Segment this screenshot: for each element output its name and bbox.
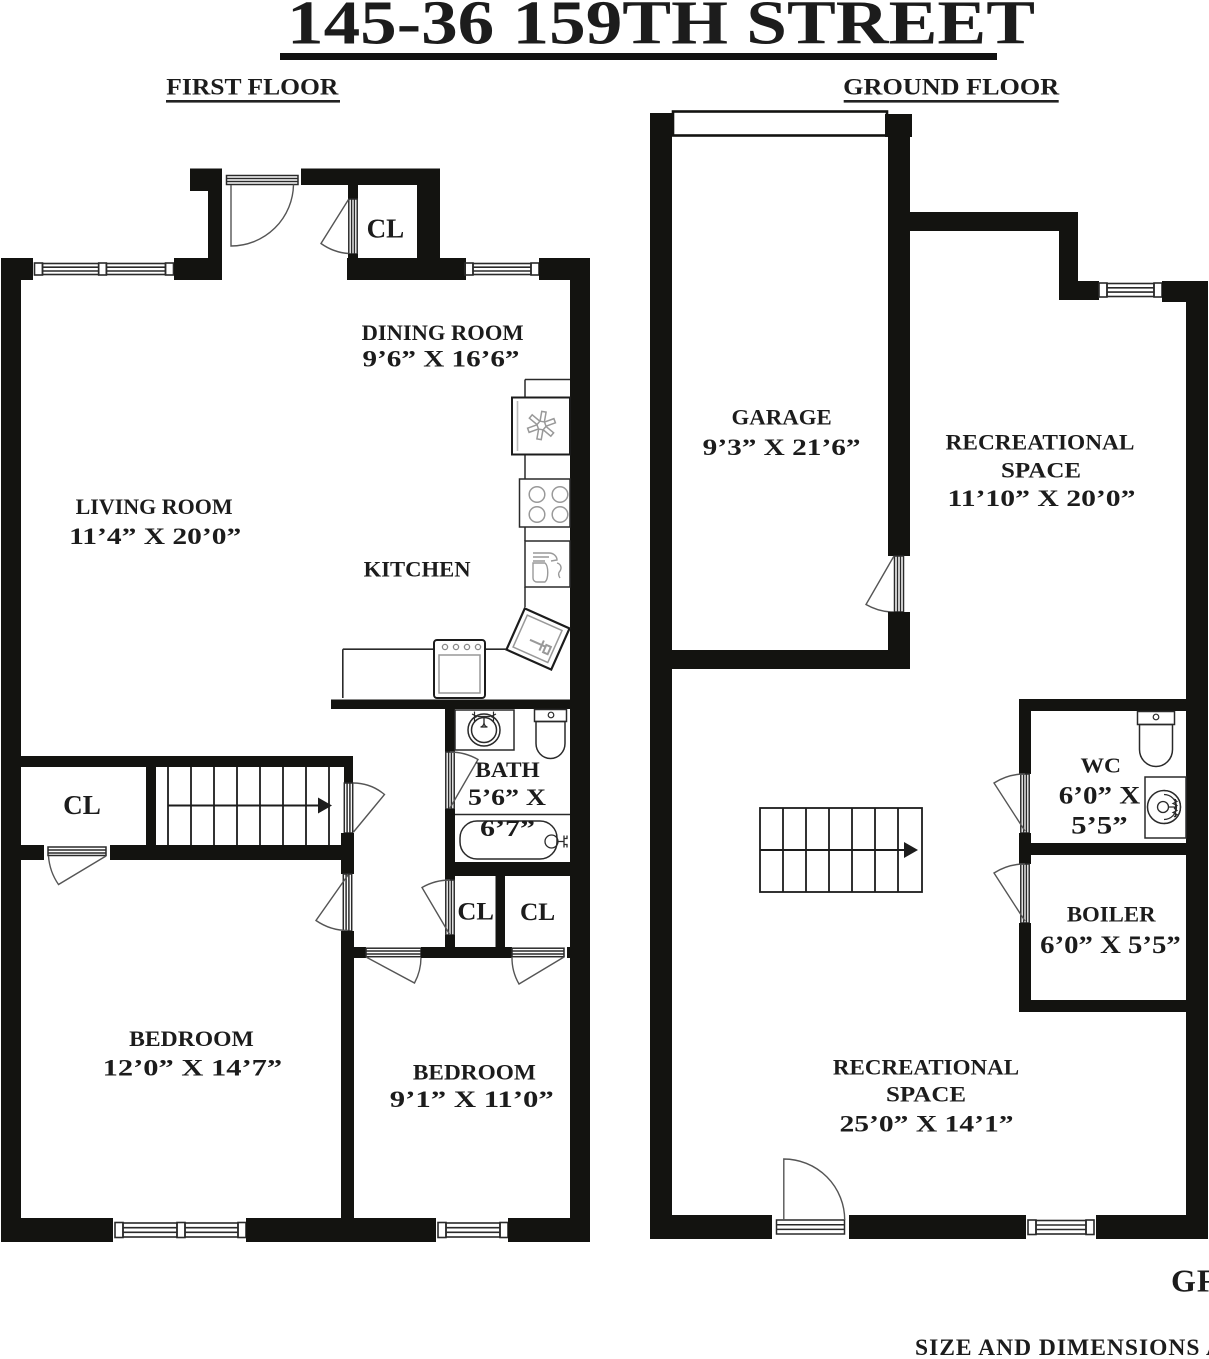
- svg-text:LIVING ROOM: LIVING ROOM: [76, 494, 233, 519]
- svg-text:CL: CL: [457, 897, 494, 926]
- svg-text:5’5”: 5’5”: [1071, 811, 1128, 840]
- svg-text:SPACE: SPACE: [886, 1082, 966, 1107]
- svg-text:GARAGE: GARAGE: [732, 405, 832, 430]
- svg-text:25’0” X 14’1”: 25’0” X 14’1”: [840, 1112, 1014, 1138]
- svg-text:RECREATIONAL: RECREATIONAL: [946, 430, 1135, 455]
- svg-text:CL: CL: [367, 214, 405, 244]
- svg-text:WC: WC: [1081, 754, 1122, 778]
- svg-text:9’6” X 16’6”: 9’6” X 16’6”: [363, 347, 520, 373]
- svg-text:9’3” X 21’6”: 9’3” X 21’6”: [703, 435, 861, 461]
- svg-text:KITCHEN: KITCHEN: [364, 557, 471, 582]
- svg-text:CL: CL: [63, 790, 101, 820]
- svg-text:CL: CL: [520, 897, 555, 926]
- svg-text:BATH: BATH: [475, 757, 540, 782]
- svg-text:DINING ROOM: DINING ROOM: [362, 320, 524, 345]
- svg-text:6’7”: 6’7”: [480, 816, 535, 842]
- svg-text:9’1” X 11’0”: 9’1” X 11’0”: [390, 1087, 554, 1113]
- svg-text:145-36 159TH STREET: 145-36 159TH STREET: [287, 0, 1035, 58]
- svg-text:RECREATIONAL: RECREATIONAL: [833, 1055, 1019, 1080]
- svg-text:6’0” X 5’5”: 6’0” X 5’5”: [1040, 932, 1181, 959]
- svg-text:SPACE: SPACE: [1001, 458, 1081, 483]
- svg-text:11’10” X 20’0”: 11’10” X 20’0”: [948, 486, 1136, 512]
- svg-text:FIRST FLOOR: FIRST FLOOR: [166, 75, 338, 100]
- svg-text:SIZE AND DIMENSIONS ARE APPROX: SIZE AND DIMENSIONS ARE APPROXIMATE: [915, 1335, 1209, 1359]
- svg-text:5’6” X: 5’6” X: [468, 785, 546, 811]
- svg-text:GROUND FLOOR: GROUND FLOOR: [843, 75, 1059, 100]
- svg-text:GF: GF: [1171, 1263, 1209, 1299]
- svg-text:BEDROOM: BEDROOM: [413, 1060, 536, 1085]
- svg-text:11’4” X 20’0”: 11’4” X 20’0”: [69, 524, 241, 550]
- svg-text:BOILER: BOILER: [1067, 902, 1156, 927]
- svg-text:6’0” X: 6’0” X: [1059, 781, 1141, 810]
- svg-text:12’0” X 14’7”: 12’0” X 14’7”: [103, 1056, 283, 1082]
- svg-text:BEDROOM: BEDROOM: [129, 1026, 254, 1051]
